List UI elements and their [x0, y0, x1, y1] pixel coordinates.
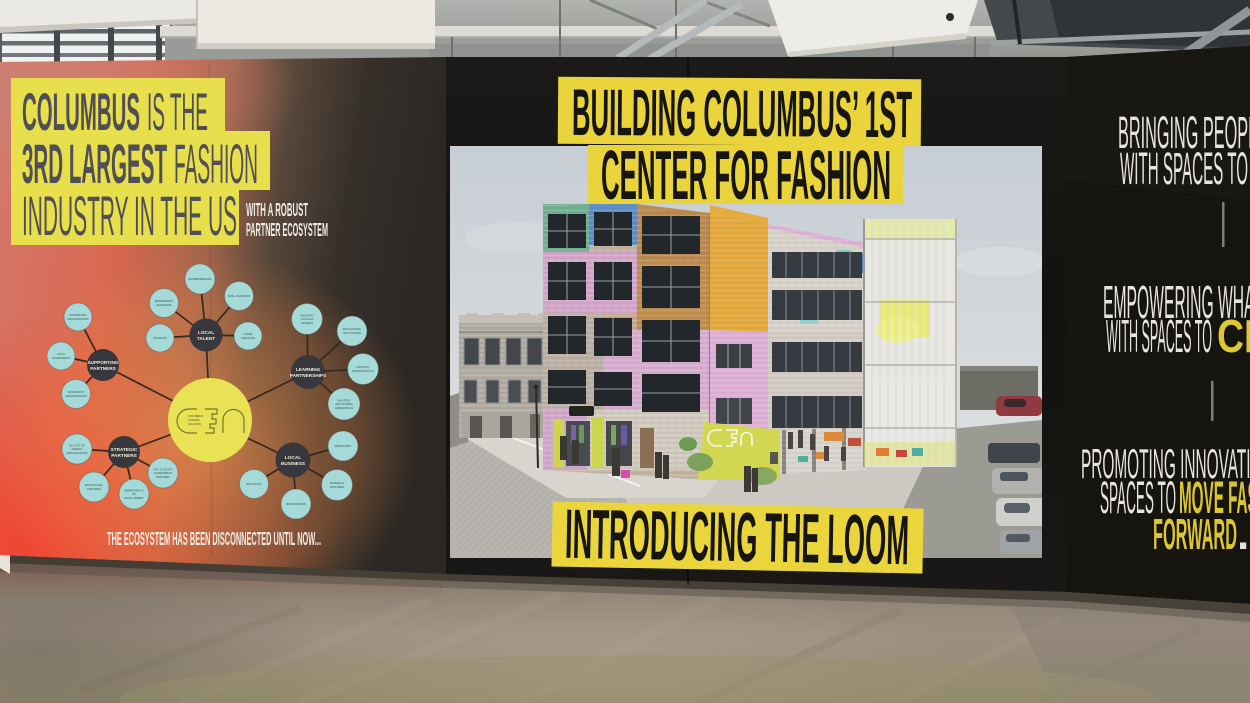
svg-text:ORGANIZATIONS: ORGANIZATIONS — [66, 451, 88, 455]
svg-text:THOUGHT: THOUGHT — [301, 317, 314, 321]
svg-text:MICRO-BRANDS: MICRO-BRANDS — [286, 502, 307, 506]
svg-text:PARTNERS: PARTNERS — [87, 487, 101, 491]
svg-text:INDUSTRY: INDUSTRY — [337, 398, 350, 402]
svg-text:DEPARTMENTS: DEPARTMENTS — [124, 488, 144, 492]
svg-text:PROFESSIONALS: PROFESSIONALS — [352, 369, 374, 373]
svg-text:PARTNERSHIPS: PARTNERSHIPS — [290, 373, 326, 378]
svg-text:CREATIVES: CREATIVES — [241, 336, 256, 340]
svg-text:INDUSTRY: INDUSTRY — [300, 313, 313, 317]
svg-text:SUPPORTING: SUPPORTING — [88, 360, 119, 365]
svg-text:SUPPLIERS: SUPPLIERS — [330, 485, 345, 489]
svg-text:BOUTIQUES: BOUTIQUES — [246, 482, 262, 486]
svg-text:GOVERNMENT: GOVERNMENT — [52, 356, 71, 360]
svg-text:INDUSTRY: INDUSTRY — [356, 365, 369, 369]
svg-text:EDUCATIONAL: EDUCATIONAL — [85, 483, 104, 487]
svg-text:RECOGNIZED: RECOGNIZED — [335, 402, 352, 406]
svg-text:PRODUCERS: PRODUCERS — [335, 444, 352, 448]
svg-text:EDUCATIONAL: EDUCATIONAL — [343, 327, 362, 331]
svg-text:GOVERNMENT: GOVERNMENT — [154, 471, 173, 475]
svg-text:DESIGNERS: DESIGNERS — [156, 303, 172, 307]
svg-text:PARTNER ECOSYSTEM: PARTNER ECOSYSTEM — [246, 220, 328, 240]
svg-text:CREDENTIALS: CREDENTIALS — [335, 406, 353, 410]
svg-text:PARTNERS: PARTNERS — [156, 475, 170, 479]
svg-text:ALLIANCE: ALLIANCE — [188, 422, 201, 426]
svg-text:WITH SPACES TOCR: WITH SPACES TOCR — [1106, 310, 1250, 362]
svg-text:FORWARD.: FORWARD. — [1153, 510, 1249, 559]
svg-text:FASHION: FASHION — [188, 418, 200, 422]
svg-text:OTHER: OTHER — [243, 332, 252, 336]
svg-text:DEVELOPMENT: DEVELOPMENT — [124, 496, 144, 500]
svg-text:IN & OUT OF: IN & OUT OF — [69, 443, 85, 447]
svg-text:LOCAL: LOCAL — [198, 330, 214, 335]
svg-text:OF: OF — [132, 492, 136, 496]
svg-text:NON-PROFIT: NON-PROFIT — [68, 390, 85, 394]
svg-text:MATERIALS: MATERIALS — [330, 481, 345, 485]
svg-text:INTRODUCING THE LOOM: INTRODUCING THE LOOM — [564, 495, 909, 580]
svg-text:LEARNING: LEARNING — [296, 367, 321, 372]
svg-text:LOCAL: LOCAL — [285, 455, 301, 460]
svg-text:PARTNERS: PARTNERS — [90, 366, 115, 371]
svg-text:ORGANIZATIONS: ORGANIZATIONS — [67, 317, 89, 321]
svg-text:INDEPENDENT: INDEPENDENT — [155, 299, 174, 303]
svg-text:LOCAL: LOCAL — [57, 352, 66, 356]
svg-text:WITH A ROBUST: WITH A ROBUST — [246, 200, 308, 220]
svg-text:STRATEGIC: STRATEGIC — [111, 447, 138, 452]
svg-text:PARTNERS: PARTNERS — [111, 453, 136, 458]
svg-text:TALENT: TALENT — [197, 336, 215, 341]
svg-text:WITH SPACES TO: WITH SPACES TO — [1120, 143, 1248, 194]
svg-text:CENTER FOR FASHION: CENTER FOR FASHION — [601, 136, 891, 214]
svg-text:COLUMBUS: COLUMBUS — [188, 414, 203, 418]
svg-text:INDUSTRY IN THE US: INDUSTRY IN THE US — [22, 184, 237, 247]
svg-text:SMALL BUSINESS: SMALL BUSINESS — [228, 294, 251, 298]
svg-text:ORGANIZATIONS: ORGANIZATIONS — [65, 394, 87, 398]
svg-text:SUPPORTING: SUPPORTING — [69, 313, 86, 317]
svg-text:ENTREPRENEURS: ENTREPRENEURS — [188, 277, 211, 281]
svg-text:LEADERS: LEADERS — [301, 321, 313, 325]
svg-text:THE ECOSYSTEM HAS BEEN DISCONN: THE ECOSYSTEM HAS BEEN DISCONNECTED UNTI… — [107, 529, 321, 549]
svg-text:CITY & COUNTY: CITY & COUNTY — [153, 467, 173, 471]
svg-text:MARKET: MARKET — [72, 447, 83, 451]
svg-text:BUSINESS: BUSINESS — [281, 461, 305, 466]
svg-text:INSTITUTIONS: INSTITUTIONS — [343, 331, 361, 335]
svg-text:STUDENTS: STUDENTS — [153, 336, 167, 340]
